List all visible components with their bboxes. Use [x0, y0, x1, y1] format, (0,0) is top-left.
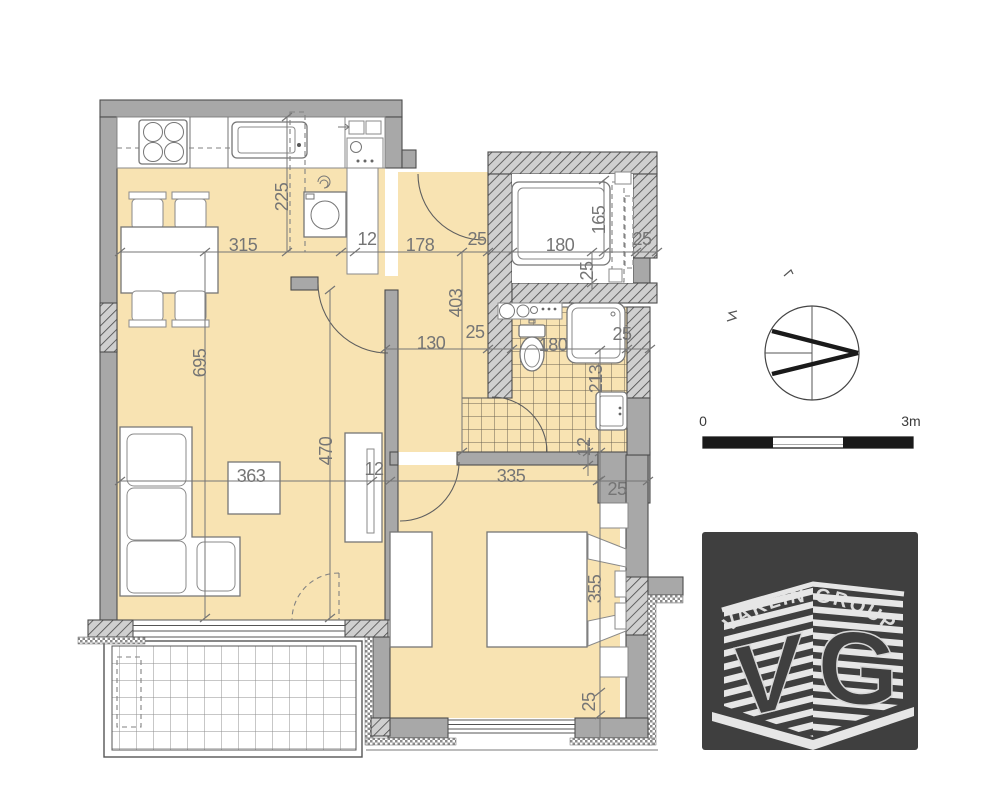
wall-top	[100, 100, 402, 117]
dimension-label: 12	[364, 459, 384, 479]
chair-back	[129, 192, 166, 199]
vanity-shelf	[498, 303, 562, 319]
chair-back	[129, 320, 166, 327]
dimension-label: 130	[417, 333, 446, 353]
wall-shaft-left-hatch	[488, 174, 512, 398]
living-window	[133, 620, 345, 637]
dimension-label: 355	[585, 574, 605, 603]
wall-bath-top-hatch	[512, 283, 657, 303]
compass-icon	[727, 270, 859, 400]
balcony	[104, 641, 362, 757]
dimension-label: 178	[406, 235, 435, 255]
nightstand	[600, 647, 628, 677]
shaft-box	[615, 172, 631, 184]
bed	[487, 532, 587, 647]
panel-dot	[357, 160, 360, 163]
dimension-label: 25	[579, 692, 599, 712]
tall-cabinet	[347, 168, 378, 274]
toilet-bowl	[525, 345, 540, 367]
wall-bottom-hatch	[371, 718, 390, 736]
wall-bedroom-jamb	[390, 452, 398, 465]
logo-monogram-g: G	[818, 608, 899, 731]
headboard-detail	[615, 603, 626, 629]
hall-floor-upper	[398, 172, 488, 276]
scale-bar: 0 3m	[699, 413, 921, 448]
dimension-label: 25	[632, 229, 652, 249]
sofa-cushion	[127, 488, 186, 540]
sofa-cushion	[127, 541, 186, 593]
sofa-cushion	[127, 434, 186, 486]
wall-shaft-right-gray	[633, 258, 650, 283]
insulation-bottom-left	[366, 738, 456, 745]
sofa-chaise	[197, 542, 235, 591]
insulation-right	[648, 595, 656, 745]
insulation-living-bottom	[78, 637, 145, 644]
dimension-label: 25	[607, 479, 627, 499]
wall-living-bottom-hatch-r	[345, 620, 388, 637]
dimension-label: 12	[357, 229, 377, 249]
sink-dot	[619, 413, 622, 416]
dining-table	[121, 227, 218, 293]
kitchen-faucet	[297, 143, 301, 147]
panel-dot	[364, 160, 367, 163]
vanity-dot	[542, 308, 545, 311]
company-logo: VAKLIN GROUP V G	[702, 532, 918, 750]
panel-dot	[371, 160, 374, 163]
dimension-label: 470	[316, 436, 336, 465]
panel-box	[349, 121, 364, 134]
utility-room	[512, 172, 633, 283]
dimension-label: 180	[539, 335, 568, 355]
wall-balcony-bedroom	[373, 637, 390, 718]
logo-monogram-v: V	[733, 611, 802, 742]
dimension-label: 12	[574, 437, 594, 457]
balcony-tiles	[112, 646, 356, 750]
chair-back	[172, 192, 209, 199]
dimension-label: 225	[272, 182, 292, 211]
scale-max-label: 3m	[901, 413, 920, 429]
dimension-label: 165	[589, 205, 609, 234]
compass-mark2	[727, 311, 737, 321]
compass-mark	[784, 270, 793, 276]
dimension-label: 180	[546, 235, 575, 255]
chair	[175, 291, 206, 321]
sink-dot	[619, 407, 622, 410]
scale-segment-black2	[843, 437, 913, 448]
vanity-dot	[554, 308, 557, 311]
wall-left	[100, 117, 117, 620]
chair	[175, 199, 206, 229]
dimension-label: 363	[237, 466, 266, 486]
wall-bath-right-gray	[627, 398, 650, 455]
stove	[139, 120, 187, 164]
chair	[132, 291, 163, 321]
dimension-label: 213	[586, 364, 606, 393]
insulation-bottom-right	[570, 738, 652, 745]
shaft-box2	[609, 269, 622, 282]
bedroom-window	[448, 720, 575, 733]
bathroom-sink-inner	[600, 396, 623, 426]
panel-box2	[366, 121, 381, 134]
entrance-jamb	[402, 150, 416, 168]
nightstand	[600, 503, 628, 528]
chair-back	[172, 320, 209, 327]
wall-bedroom-bottom-right	[575, 718, 648, 738]
wardrobe	[390, 532, 432, 647]
scale-min-label: 0	[699, 413, 707, 429]
wall-left-column-hatch	[100, 303, 117, 352]
dimension-label: 335	[497, 466, 526, 486]
wall-bedroom-right-hatch	[626, 577, 648, 635]
dimension-label: 25	[612, 324, 632, 344]
floor-plan-svg: 2253151217825180165252569540313025180252…	[0, 0, 1000, 800]
tv-stand	[345, 433, 382, 542]
vanity-dot	[548, 308, 551, 311]
dimension-label: 25	[467, 229, 487, 249]
wall-living-bottom-hatch-l	[88, 620, 133, 637]
dimension-label: 315	[229, 235, 258, 255]
wall-shaft-top-hatch	[488, 152, 657, 174]
dimension-label: 695	[190, 348, 210, 377]
dimension-label: 403	[446, 288, 466, 317]
dimension-label: 25	[577, 261, 597, 281]
wall-bedroom-bottom-left	[388, 718, 448, 738]
wall-door-stub	[291, 277, 318, 290]
chair	[132, 199, 163, 229]
wall-neighbor-stub	[648, 577, 683, 595]
headboard-detail	[615, 571, 626, 597]
kitchen-sink-basin	[238, 127, 295, 153]
scale-segment-black	[703, 437, 773, 448]
wall-kitchen-right	[385, 117, 402, 168]
dimension-label: 25	[465, 322, 485, 342]
floor-plan-page: 2253151217825180165252569540313025180252…	[0, 0, 1000, 800]
